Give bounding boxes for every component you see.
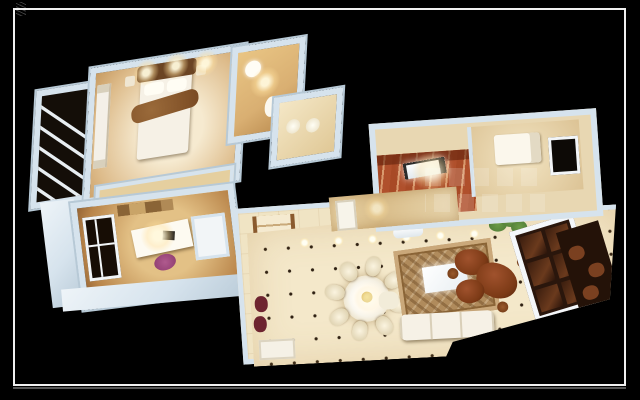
armchair	[378, 291, 399, 310]
spotlight	[435, 230, 446, 241]
wardrobe	[93, 83, 111, 169]
spotlight	[299, 238, 310, 249]
interior-door	[335, 199, 358, 231]
door-glass-pane	[527, 257, 556, 286]
spotlight	[469, 229, 480, 240]
side-chair	[254, 296, 268, 313]
dark-window	[548, 136, 581, 176]
corridor-light-glow	[363, 194, 391, 222]
door-glass-pane	[535, 283, 564, 312]
sideboard	[259, 338, 296, 360]
ceiling-light-glow	[192, 48, 219, 79]
spotlight	[367, 234, 378, 245]
dining-chair	[373, 314, 397, 339]
closet-niche	[191, 213, 230, 261]
fixture-ball	[306, 117, 321, 133]
nook-chair	[581, 284, 600, 302]
dining-chair	[323, 283, 346, 302]
fixture-ball	[286, 118, 301, 134]
stool	[497, 301, 509, 313]
bedroom-2	[467, 119, 584, 197]
study-wing	[40, 176, 259, 316]
dining-chair	[351, 320, 370, 343]
frame-bottom-shadow	[13, 387, 626, 389]
nook-chair	[587, 261, 606, 279]
bathroom-small	[270, 87, 343, 167]
rendered-floorplan-image	[0, 0, 640, 400]
dining-chair	[364, 255, 383, 278]
bookshelf	[117, 199, 174, 217]
purple-chair	[152, 251, 178, 273]
door-glass-pane	[519, 231, 548, 260]
spotlight	[333, 236, 344, 247]
nook-chair	[567, 244, 586, 262]
fur-throw	[131, 87, 200, 125]
single-bed	[494, 132, 542, 165]
study-window	[82, 214, 122, 281]
side-chair	[253, 316, 267, 333]
